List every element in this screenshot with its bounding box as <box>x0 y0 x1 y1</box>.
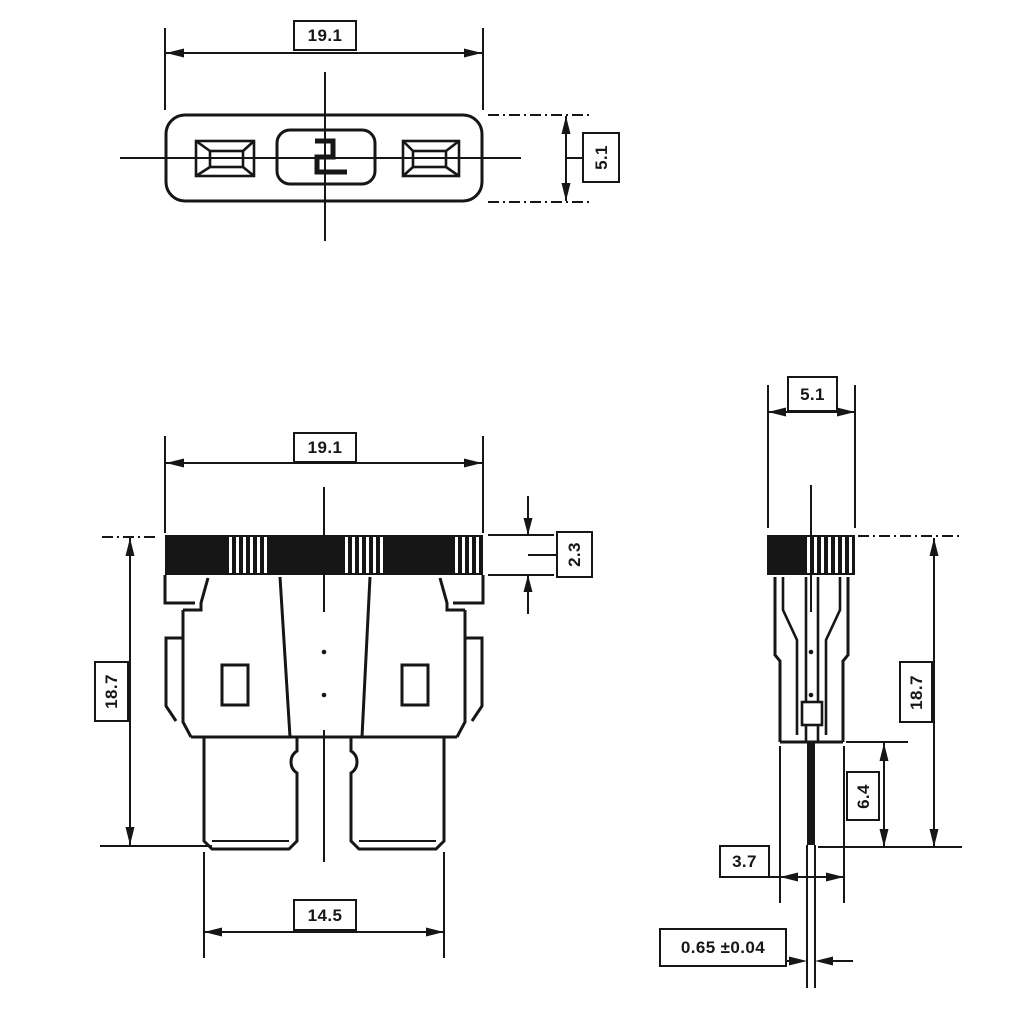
top-view <box>120 28 592 241</box>
dim-value: 19.1 <box>308 439 343 456</box>
front-view-right-blade <box>351 737 444 849</box>
dim-label-side-height: 18.7 <box>899 661 933 723</box>
dim-label-blade-span: 14.5 <box>293 899 357 931</box>
front-view-top-band <box>165 535 483 575</box>
fuse-dimension-drawing: 19.1 5.1 19.1 2.3 18.7 14.5 5.1 18.7 6.4… <box>0 0 1024 1024</box>
dim-value: 5.1 <box>593 145 610 170</box>
dim-label-front-width: 19.1 <box>293 432 357 463</box>
dim-value: 3.7 <box>732 853 757 870</box>
dim-value: 19.1 <box>308 27 343 44</box>
dim-label-side-width: 5.1 <box>787 376 838 412</box>
front-view-left-window <box>222 665 248 705</box>
dim-value: 6.4 <box>855 784 872 809</box>
front-view-right-window <box>402 665 428 705</box>
blade-thickness-dimension <box>779 845 853 988</box>
dim-label-front-height: 18.7 <box>94 661 129 722</box>
dim-value: 5.1 <box>800 386 825 403</box>
dim-label-blade-length: 6.4 <box>846 771 880 821</box>
dim-value: 2.3 <box>566 542 583 567</box>
dim-value: 14.5 <box>308 907 343 924</box>
dim-label-top-depth: 5.1 <box>582 132 620 183</box>
front-view-left-blade <box>204 737 297 849</box>
dim-value: 18.7 <box>908 675 925 710</box>
front-view-element-taper-left <box>280 577 290 737</box>
side-view-blade <box>807 742 815 845</box>
side-view-top-band <box>767 535 855 575</box>
front-view-element-taper-right <box>362 577 370 737</box>
fuse-marking-glyph <box>315 141 347 172</box>
front-view <box>100 436 557 958</box>
dim-value: 0.65 ±0.04 <box>681 939 765 956</box>
dim-label-blade-thickness: 0.65 ±0.04 <box>659 928 787 967</box>
dim-label-bottom-width: 3.7 <box>719 845 770 878</box>
drawing-linework <box>0 0 1024 1024</box>
band-height-dimension <box>488 496 557 614</box>
side-view-element-window <box>802 702 822 725</box>
dim-label-band-height: 2.3 <box>556 531 593 578</box>
dim-value: 18.7 <box>103 674 120 709</box>
side-view <box>767 385 963 988</box>
dim-label-top-width: 19.1 <box>293 20 357 51</box>
